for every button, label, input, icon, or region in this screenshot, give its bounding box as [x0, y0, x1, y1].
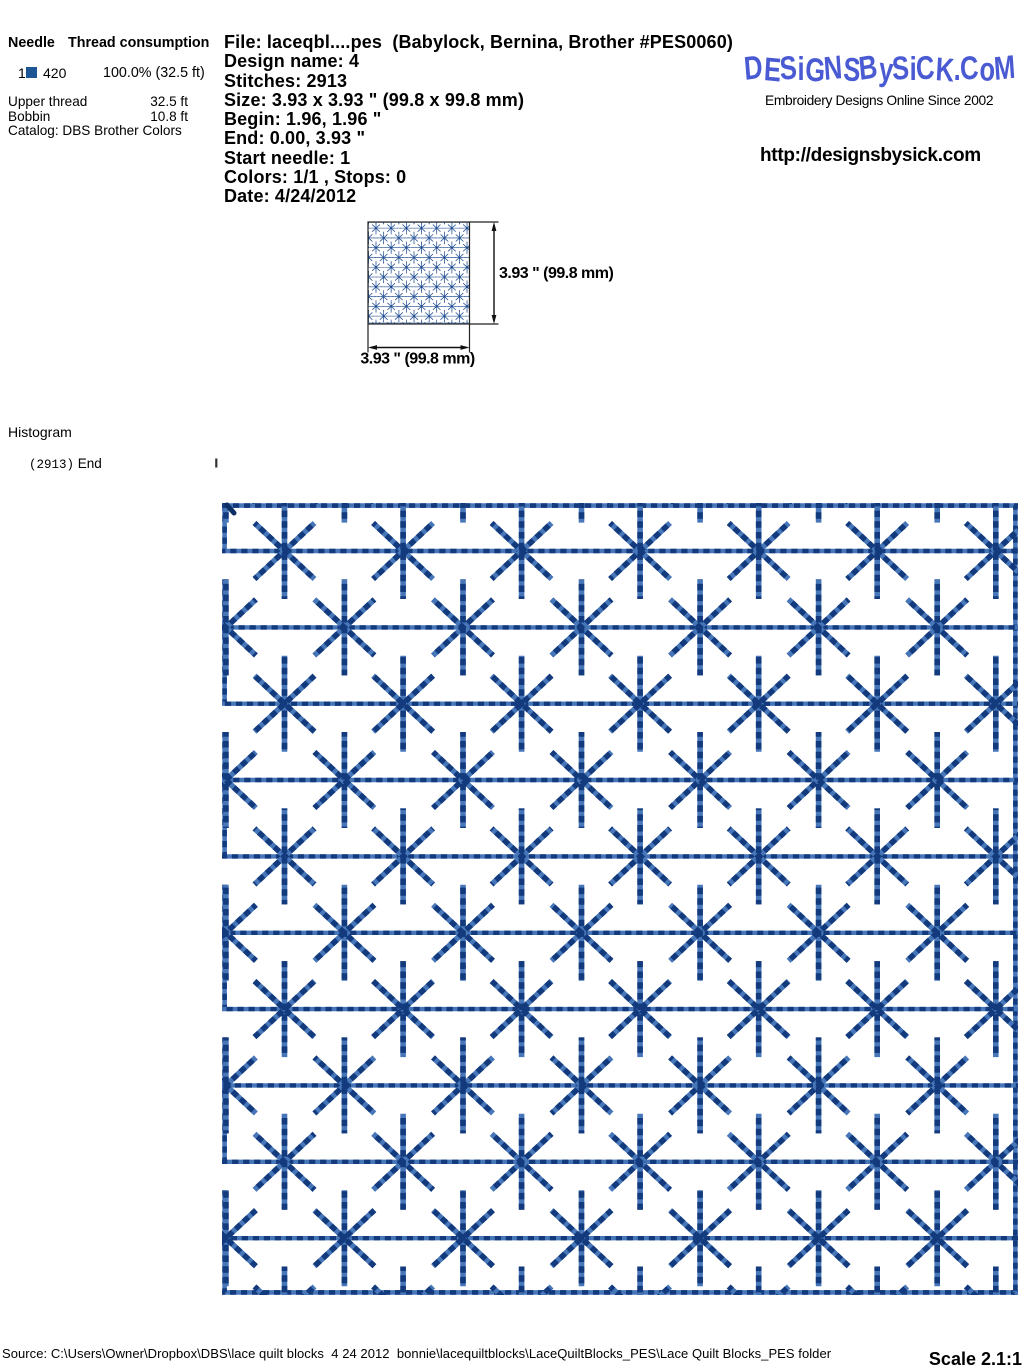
- svg-text:DESiGNSBySiCK.CoM: DESiGNSBySiCK.CoM: [742, 48, 1017, 89]
- svg-text:3.93 " (99.8 mm): 3.93 " (99.8 mm): [499, 265, 613, 282]
- svg-text:3.93 " (99.8 mm): 3.93 " (99.8 mm): [360, 351, 474, 368]
